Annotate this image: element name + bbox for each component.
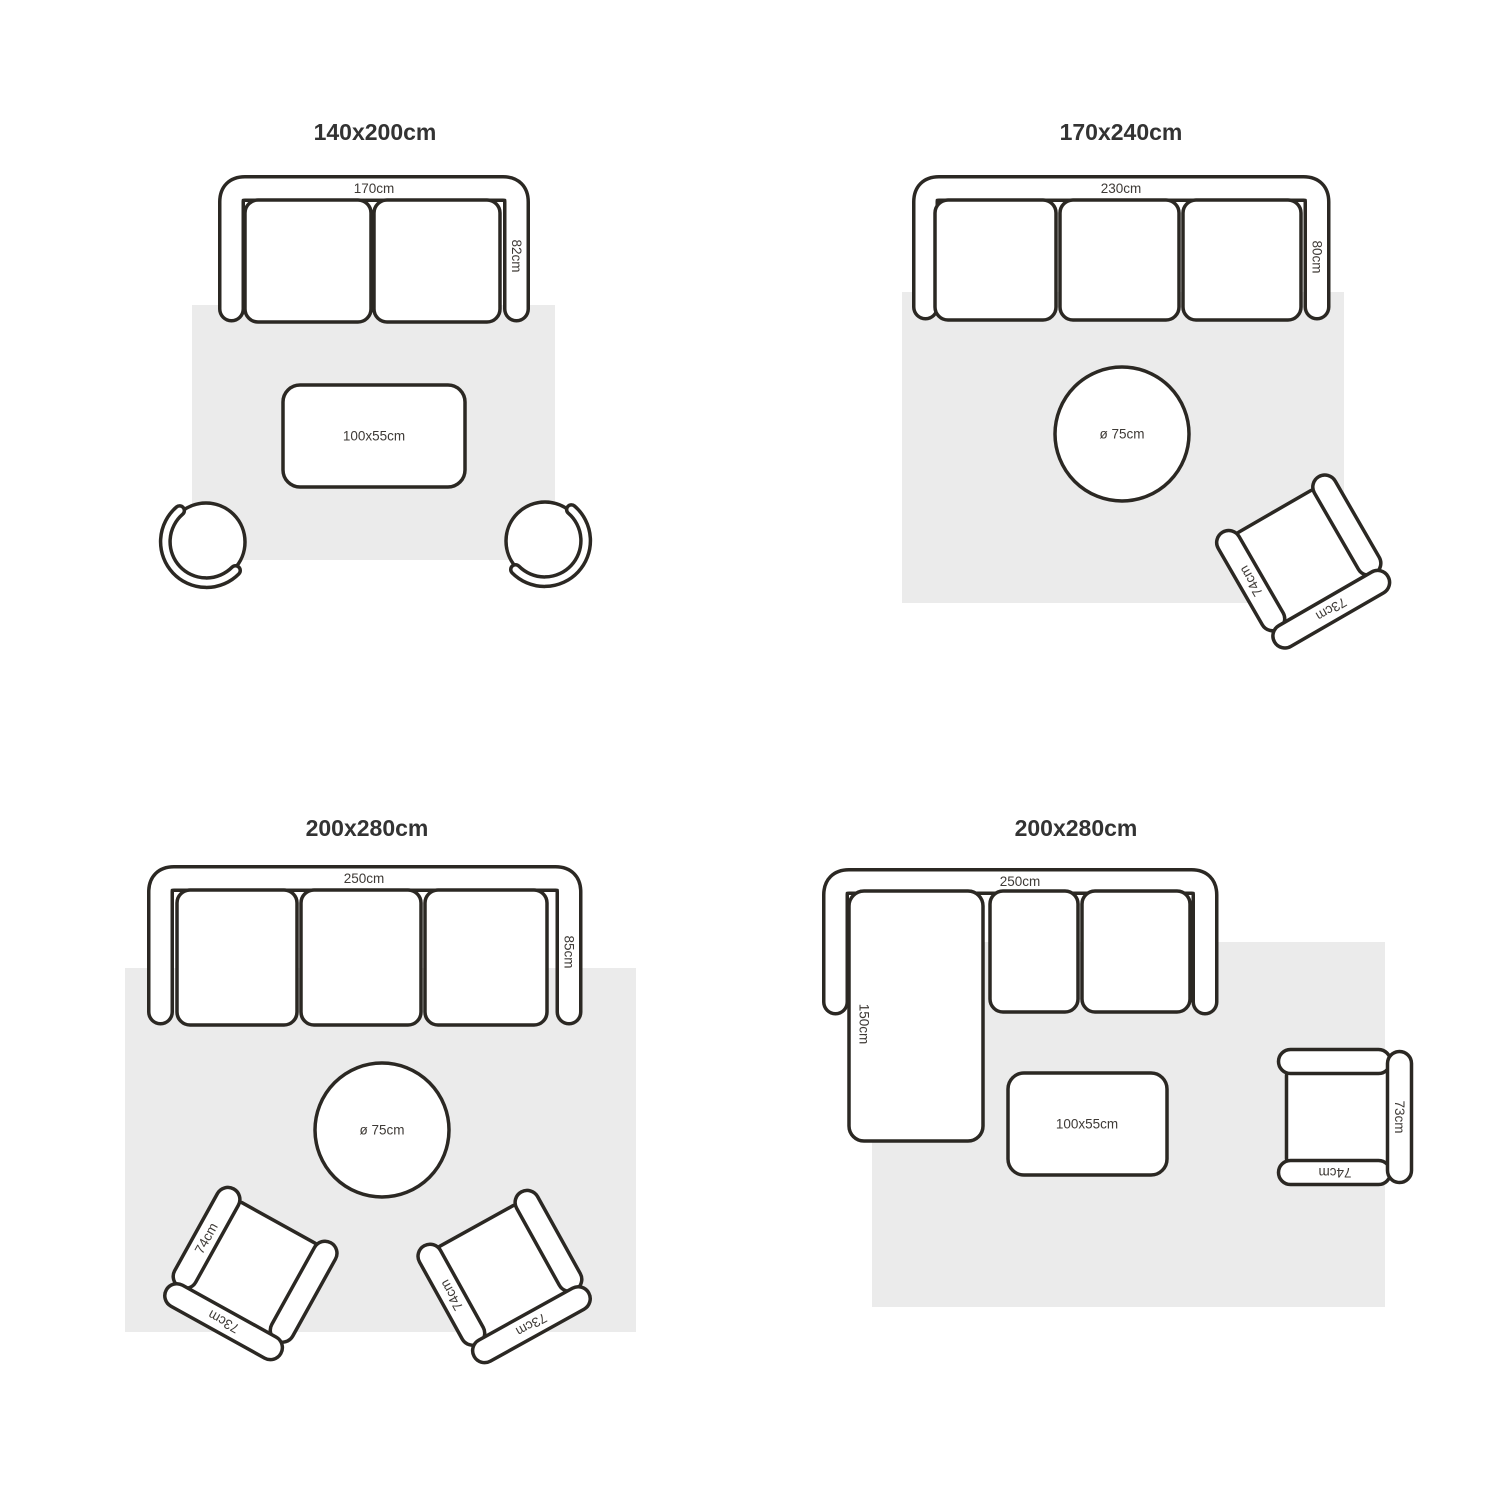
armchair-back-label: 73cm <box>1392 1100 1407 1133</box>
layout-title: 200x280cm <box>306 815 429 841</box>
sofa-depth-label: 82cm <box>509 239 524 272</box>
sofa-width-label: 250cm <box>1000 874 1041 889</box>
sofa-width-label: 250cm <box>344 871 385 886</box>
coffee-table-size-label: 100x55cm <box>343 429 405 444</box>
armchair-side-label: 74cm <box>1318 1165 1351 1180</box>
sofa-2-seat: 170cm 82cm <box>232 181 525 322</box>
sofa-cushion <box>425 890 547 1025</box>
sofa-width-label: 230cm <box>1101 181 1142 196</box>
round-table-size-label: ø 75cm <box>1099 427 1144 442</box>
rug-size-guide: 140x200cm 170cm 82cm 100x55cm 170x240cm <box>0 0 1500 1500</box>
layout-200x280-a: 200x280cm 250cm 85cm ø 75cm 74cm 73cm <box>125 815 636 1368</box>
layout-title: 200x280cm <box>1015 815 1138 841</box>
round-table-size-label: ø 75cm <box>359 1123 404 1138</box>
sofa-cushion <box>245 200 371 322</box>
sofa-cushion <box>990 891 1078 1012</box>
armchair-seat <box>1287 1066 1391 1169</box>
sofa-depth-label: 85cm <box>562 935 577 968</box>
sofa-cushion <box>935 200 1056 320</box>
sofa-depth-label: 80cm <box>1310 240 1325 273</box>
sofa-width-label: 170cm <box>354 181 395 196</box>
layout-140x200: 140x200cm 170cm 82cm 100x55cm <box>165 119 585 583</box>
rug-size-guide-canvas: 140x200cm 170cm 82cm 100x55cm 170x240cm <box>0 0 1500 1500</box>
sofa-cushion <box>1082 891 1190 1012</box>
sofa-chaise-depth-label: 150cm <box>857 1004 872 1045</box>
layout-title: 170x240cm <box>1060 119 1183 145</box>
layout-200x280-b: 200x280cm 250cm 150cm 100x55cm 74cm 73cm <box>836 815 1412 1307</box>
sofa-cushion <box>301 890 421 1025</box>
sofa-3-seat: 230cm 80cm <box>926 181 1325 320</box>
round-chair-right <box>506 502 586 582</box>
coffee-table-size-label: 100x55cm <box>1056 1117 1118 1132</box>
sofa-cushion <box>1183 200 1301 320</box>
sofa-cushion <box>1060 200 1179 320</box>
round-chair-left <box>165 503 245 583</box>
sofa-cushion <box>177 890 297 1025</box>
sofa-cushion <box>374 200 500 322</box>
armchair-armrest-right <box>1279 1050 1391 1074</box>
layout-title: 140x200cm <box>314 119 437 145</box>
layout-170x240: 170x240cm 230cm 80cm ø 75cm 74cm 73cm <box>902 119 1396 653</box>
armchair: 74cm 73cm <box>1279 1050 1412 1185</box>
sofa-3-seat: 250cm 85cm <box>161 871 577 1025</box>
